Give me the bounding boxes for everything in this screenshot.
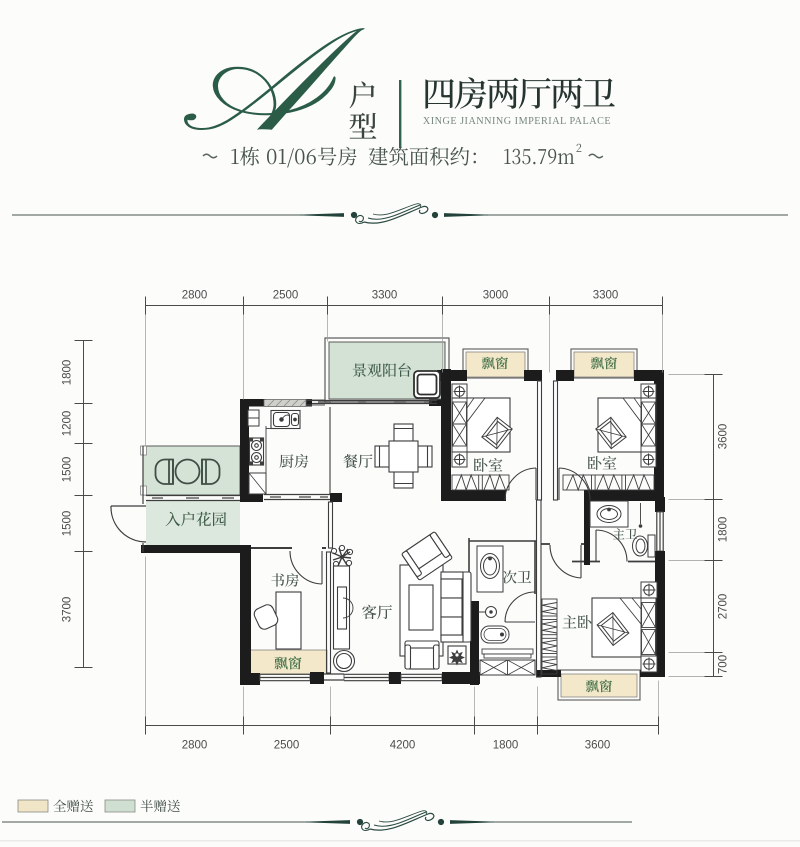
svg-text:3300: 3300 [593, 290, 619, 302]
svg-text:1800: 1800 [493, 740, 519, 752]
svg-text:2500: 2500 [274, 740, 300, 752]
svg-text:1800: 1800 [62, 360, 74, 386]
svg-text:3700: 3700 [62, 597, 74, 623]
svg-text:XINGE JIANNING IMPERIAL PALACE: XINGE JIANNING IMPERIAL PALACE [423, 116, 611, 127]
svg-text:3000: 3000 [483, 290, 509, 302]
svg-text:2700: 2700 [718, 594, 730, 620]
svg-text:1800: 1800 [718, 517, 730, 543]
svg-text:3600: 3600 [718, 424, 730, 450]
svg-text:1500: 1500 [62, 457, 74, 483]
svg-text:1500: 1500 [62, 511, 74, 537]
svg-text:3300: 3300 [372, 290, 398, 302]
svg-text:3600: 3600 [585, 740, 611, 752]
svg-text:700: 700 [718, 655, 730, 674]
svg-text:4200: 4200 [390, 740, 416, 752]
svg-text:2800: 2800 [182, 290, 208, 302]
svg-text:1200: 1200 [62, 411, 74, 437]
svg-text:2500: 2500 [273, 290, 299, 302]
svg-text:2800: 2800 [182, 740, 208, 752]
